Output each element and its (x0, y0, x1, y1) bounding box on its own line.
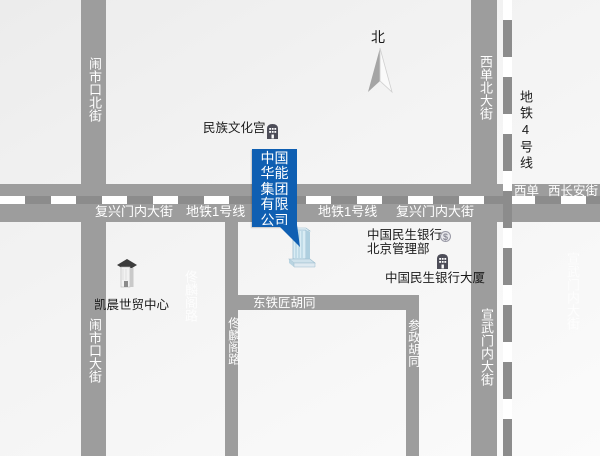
schematic-map: 佟麟阁路 宣武门内大街 闹市口北街 闹市口大街 西单北大街 宣武门内大街 佟麟阁… (0, 0, 600, 456)
compass-north-arrow-icon (362, 46, 398, 99)
metro-line4-label: 地铁4号线 (517, 90, 532, 172)
road-label-xichangan: 西长安街 (548, 184, 598, 198)
company-name-line: 中国 (252, 151, 297, 166)
road-label-xidan-area: 西单 (514, 184, 539, 198)
watermark-left: 佟麟阁路 (182, 270, 197, 322)
poi-label-minsheng-bank-line1: 中国民生银行 (367, 228, 442, 242)
road-label-fuxingmen-left: 复兴门内大街 (95, 205, 173, 220)
bank-money-icon: $ (440, 231, 451, 242)
road-label-fuxingmen-right: 复兴门内大街 (396, 205, 474, 220)
company-name-line: 华能 (252, 166, 297, 181)
road-label-tonglinge: 佟麟阁路 (226, 317, 240, 365)
road-label-dongtiejiang: 东铁匠胡同 (253, 296, 316, 310)
watermark-right: 宣武门内大街 (564, 252, 579, 330)
building-icon (266, 123, 279, 144)
company-name-line: 有限 (252, 197, 297, 212)
kaichen-building-icon (116, 259, 138, 298)
poi-label-minsheng-bank-line2: 北京管理部 (367, 242, 430, 256)
road-label-canzheng: 参政胡同 (406, 319, 420, 367)
company-name-line: 集团 (252, 182, 297, 197)
metro-line1-label-right: 地铁1号线 (318, 205, 377, 220)
compass-north-label: 北 (371, 29, 385, 45)
building-icon (436, 253, 449, 274)
road-label-naoshikou-north: 闹市口北街 (86, 57, 101, 122)
metro-line1-label-left: 地铁1号线 (186, 205, 245, 220)
callout-tail-pointer (276, 225, 302, 254)
company-callout: 中国 华能 集团 有限 公司 (252, 149, 297, 227)
road-label-xidan-north: 西单北大街 (477, 55, 492, 120)
poi-label-minzu-cultural-palace: 民族文化宫 (203, 121, 266, 135)
road-label-xuanwumen: 宣武门内大街 (478, 308, 493, 386)
metro-line4-dashes (503, 0, 512, 456)
road-label-naoshikou-south: 闹市口大街 (86, 318, 101, 383)
poi-label-kaichen-world-trade-center: 凯晨世贸中心 (94, 298, 169, 312)
poi-label-minsheng-tower: 中国民生银行大厦 (385, 271, 485, 285)
